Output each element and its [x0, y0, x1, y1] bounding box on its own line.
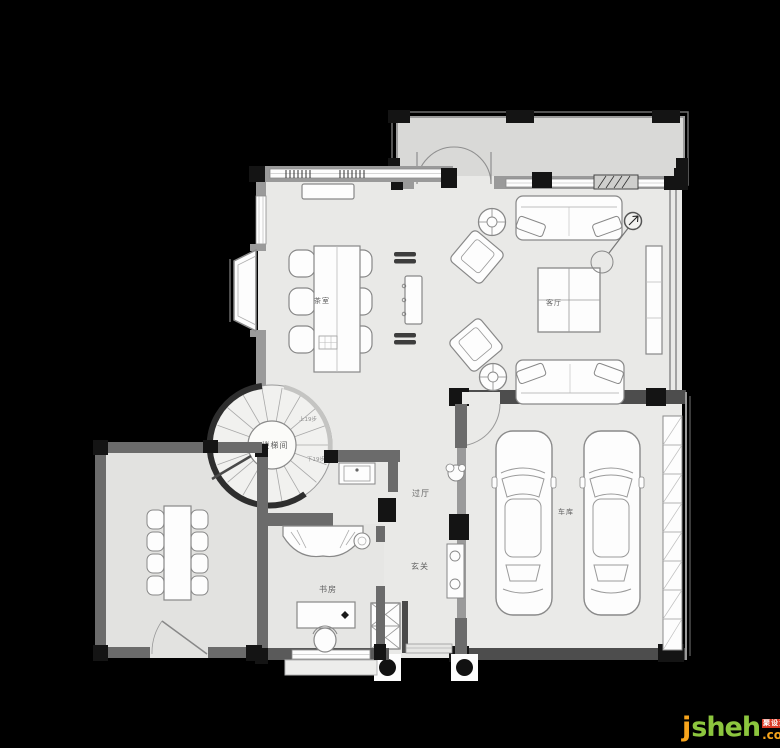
watermark-j: j: [682, 714, 691, 741]
watermark-sheh: sheh: [691, 714, 760, 741]
watermark-dotcom: .com: [762, 729, 780, 741]
wall-cabinet: [646, 246, 662, 354]
sofa-top: [515, 196, 622, 240]
entrance-columns: [374, 654, 478, 681]
floor-plan-svg: 车库 茶室: [0, 0, 780, 748]
car-right: [580, 431, 644, 615]
garage-sectional-door: [663, 416, 682, 650]
floor-plan-page: 车库 茶室: [0, 0, 780, 748]
garage-label: 车库: [558, 507, 574, 516]
stairs-down-note: 下19步: [307, 456, 325, 463]
sideboard: [302, 184, 354, 199]
study-label: 书房: [319, 584, 337, 594]
wash-basin: [339, 463, 375, 484]
tea-room-label: 茶室: [314, 296, 330, 305]
foyer-label: 玄关: [411, 561, 429, 571]
coffee-table: 客厅: [538, 268, 600, 332]
side-table-top: [479, 209, 506, 236]
side-room-table: [164, 506, 191, 600]
hall-bench: [447, 544, 464, 598]
living-room-label: 客厅: [546, 298, 562, 307]
side-table-bottom: [480, 364, 507, 391]
entry-door: [406, 644, 452, 653]
shoe-cabinet: [371, 603, 400, 649]
stairs-up-note: 上19步: [299, 415, 317, 423]
watermark-chinese: 聚设汇: [762, 719, 780, 728]
window-hatch-box: [594, 175, 638, 189]
desk: [297, 602, 355, 628]
sofa-bottom: [516, 360, 624, 404]
hallway-label: 过厅: [412, 488, 430, 498]
car-left: [492, 431, 556, 615]
watermark: jsheh 聚设汇 .com: [682, 714, 780, 741]
